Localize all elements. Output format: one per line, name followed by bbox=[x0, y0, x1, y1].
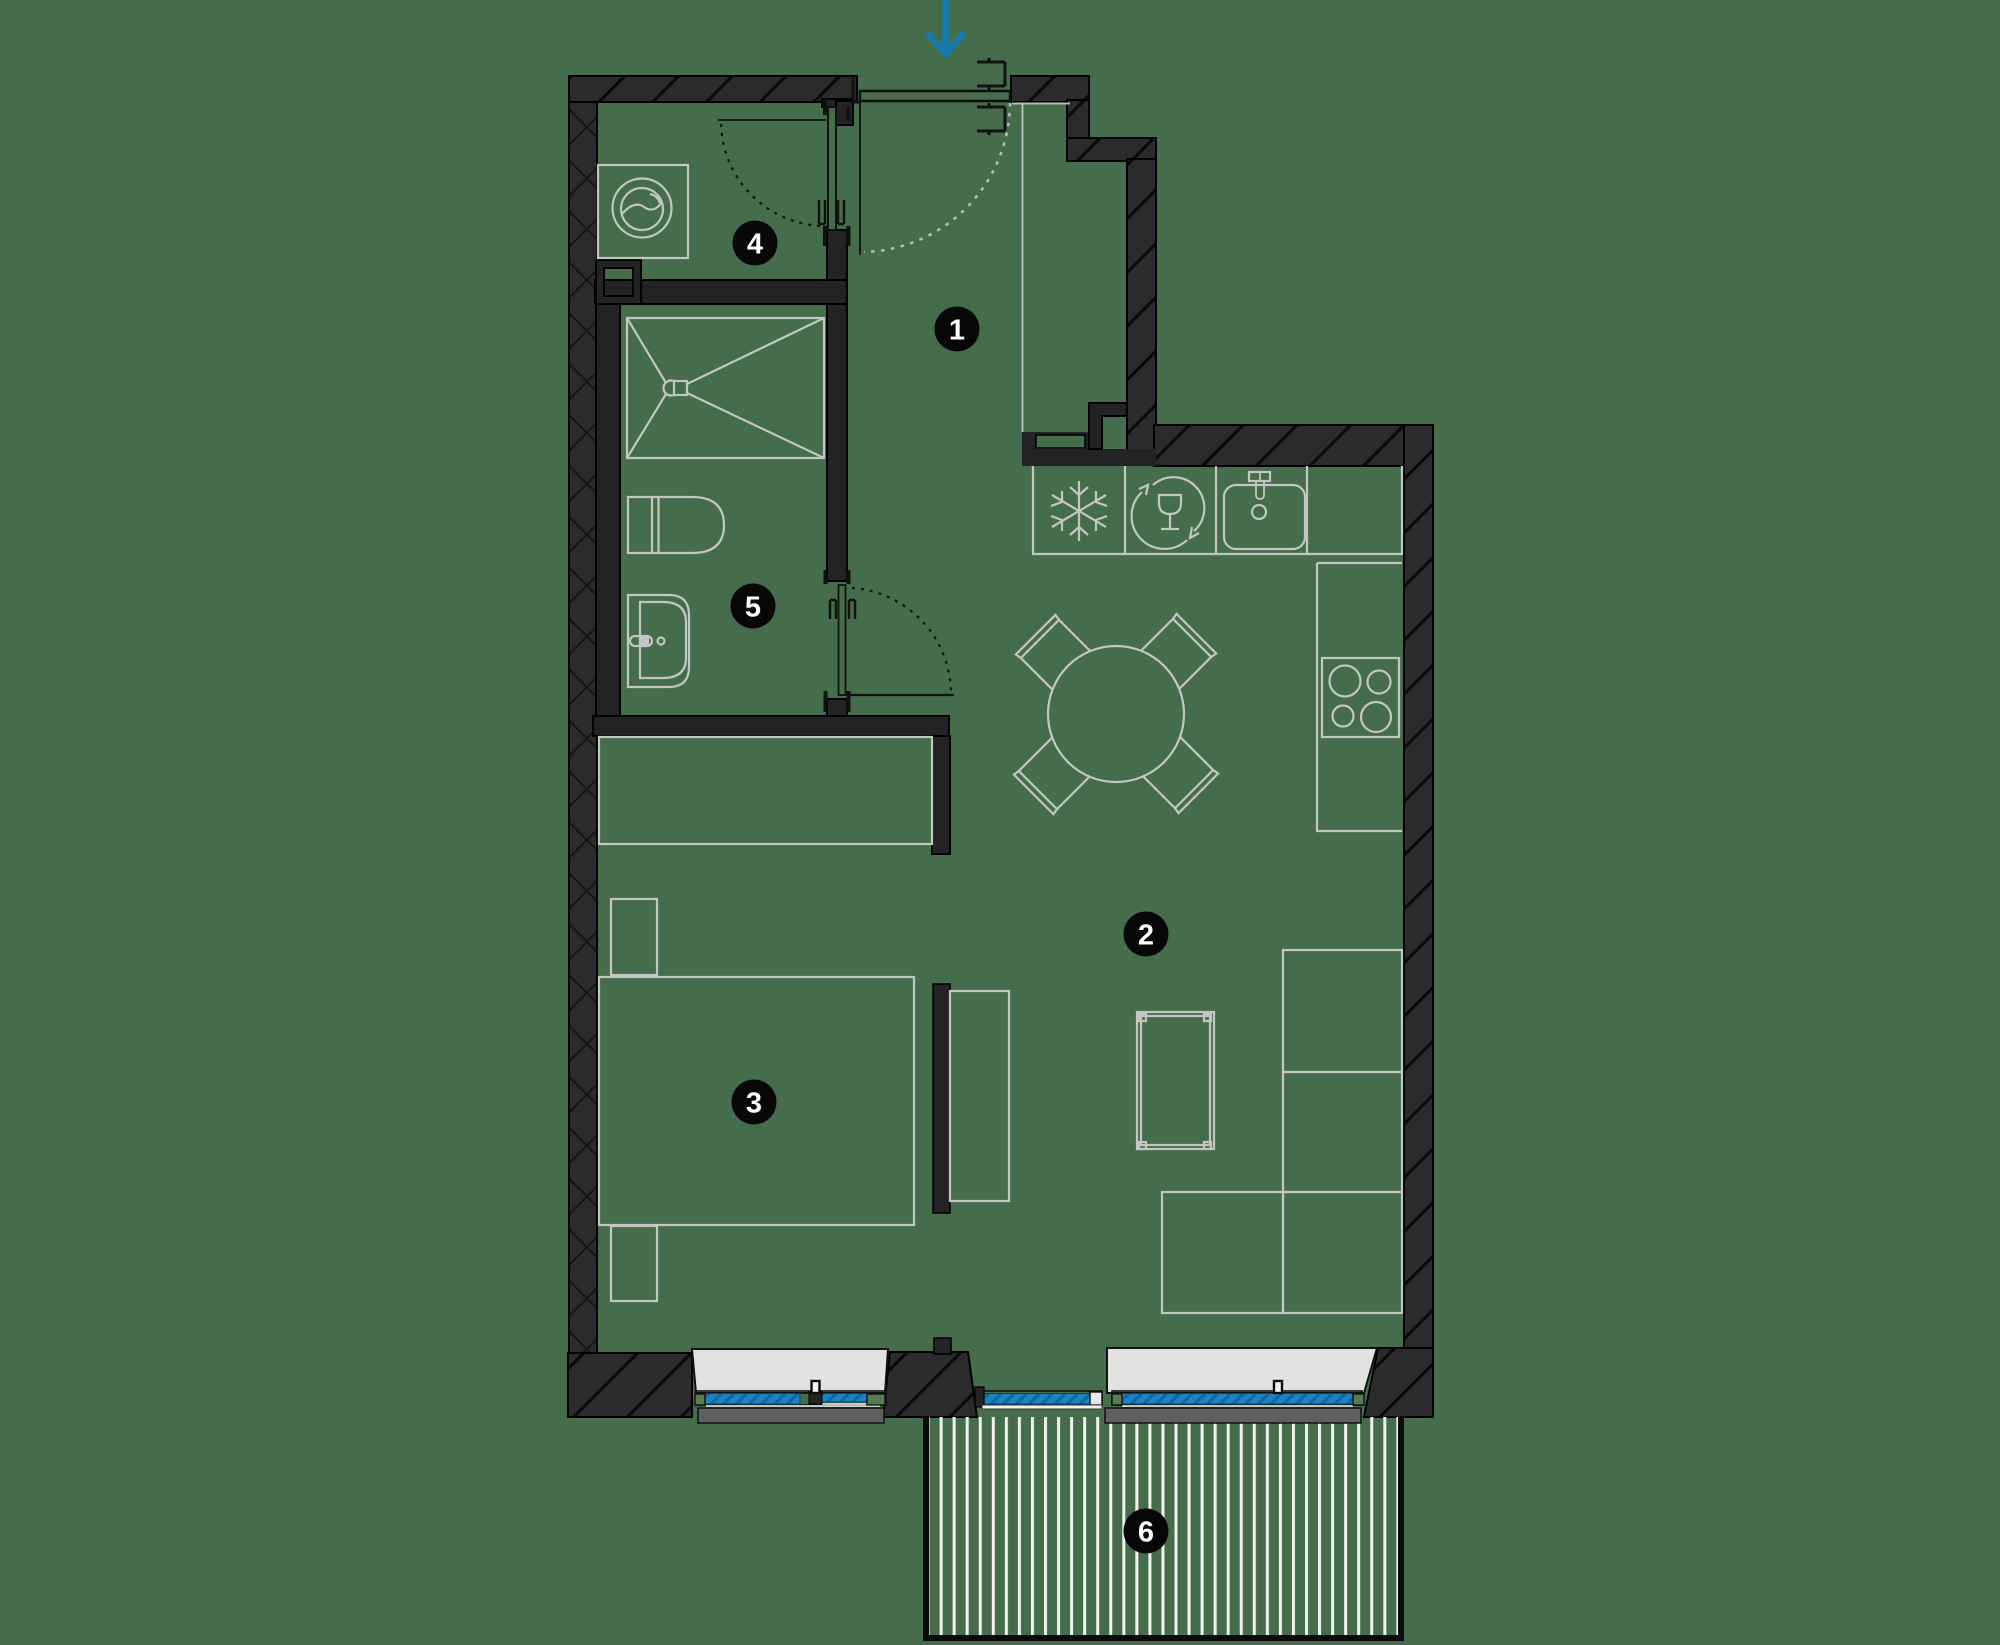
svg-text:3: 3 bbox=[746, 1088, 762, 1120]
svg-text:4: 4 bbox=[747, 229, 763, 261]
svg-text:5: 5 bbox=[745, 592, 761, 624]
svg-text:2: 2 bbox=[1138, 920, 1154, 952]
svg-text:6: 6 bbox=[1138, 1517, 1154, 1549]
svg-text:1: 1 bbox=[949, 315, 965, 347]
